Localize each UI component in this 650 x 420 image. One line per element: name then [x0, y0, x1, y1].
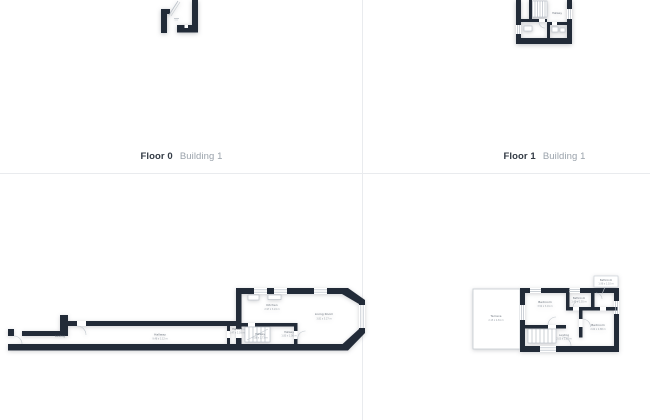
room-dims-hallway-3: 1.83 x 1.08 m [281, 335, 296, 338]
room-dims-hallway-1: 1.47 x 2.03 m [229, 332, 244, 335]
walls [8, 288, 365, 351]
staircase [528, 329, 556, 343]
door-leaf-lines [169, 1, 180, 16]
room-label-hallway-3: Hallway [284, 330, 294, 334]
plan-preview-floor0[interactable] [158, 0, 200, 35]
room-dims-bedroom-1: 3.52 x 3.01 m [537, 305, 552, 308]
caption-floor1: Floor 1Building 1 [363, 151, 650, 162]
plan-preview-floor1[interactable]: Hallway [516, 0, 572, 44]
tag-label-bathroom: Bathroom [600, 278, 613, 282]
room-label-living-room: Living Room [315, 312, 333, 316]
room-label-kitchen: Kitchen [266, 303, 277, 307]
room-dims-hallway-2: 0.88 x 1.73 m [252, 337, 267, 340]
tiny-label-marks [174, 19, 179, 21]
room-dims-bedroom-2: 2.62 x 2.88 m [590, 328, 605, 331]
room-dims-bathroom: 1.45 x 1.55 m [571, 301, 586, 304]
door-arc [539, 22, 545, 28]
staircase [533, 1, 548, 17]
room-label-hallway-2: Hallway [255, 332, 265, 336]
room-label-landing: Landing [559, 333, 569, 337]
room-dims-kitchen: 2.97 x 3.24 m [264, 308, 279, 311]
room-label-hallway: Hallway [552, 11, 562, 15]
room-label-bedroom-2: Bedroom [591, 323, 605, 327]
kitchen-fixtures [248, 295, 281, 300]
plan-floor0-main[interactable]: Landing Hallway 9.48 x 1.12 m Kitchen 2.… [8, 285, 362, 355]
floor1-preview-drawing: Hallway [516, 0, 572, 44]
floorplan-gallery: Hallway Floor 0Building 1 Floor 1Buildin… [0, 0, 650, 420]
room-label-terrace: Terrace [490, 314, 502, 318]
room-label-hallway-1: Hallway [232, 327, 242, 331]
grid-divider-vertical [362, 0, 363, 420]
caption-floor0: Floor 0Building 1 [0, 151, 363, 162]
caption-floor1-building: Building 1 [543, 151, 586, 162]
plan-floor1-main[interactable]: Bathroom 1.98 x 1.10 m Terrace 2.15 x 4.… [472, 275, 620, 353]
bathroom-fixtures [524, 26, 565, 32]
walls [161, 0, 198, 33]
floor1-main-drawing: Bathroom 1.98 x 1.10 m Terrace 2.15 x 4.… [472, 275, 620, 353]
grid-divider-horizontal [0, 173, 650, 174]
room-dims-living-room: 3.81 x 5.27 m [316, 318, 331, 321]
room-dims-terrace: 2.15 x 4.81 m [488, 319, 503, 322]
room-label-bathroom: Bathroom [573, 296, 586, 300]
tag-dims-bathroom: 1.98 x 1.10 m [598, 283, 613, 286]
floor0-main-drawing: Landing Hallway 9.48 x 1.12 m Kitchen 2.… [8, 285, 362, 355]
floor0-preview-drawing [158, 0, 200, 35]
caption-floor0-building: Building 1 [180, 151, 223, 162]
room-label-bedroom-1: Bedroom [538, 300, 552, 304]
room-label-hallway-main: Hallway [154, 333, 166, 337]
caption-floor0-label: Floor 0 [140, 151, 172, 162]
room-label-landing: Landing [55, 334, 65, 338]
caption-floor1-label: Floor 1 [503, 151, 535, 162]
room-dims-landing: 2.05 x 1.87 m [556, 338, 571, 341]
room-dims-hallway-main: 9.48 x 1.12 m [152, 338, 167, 341]
